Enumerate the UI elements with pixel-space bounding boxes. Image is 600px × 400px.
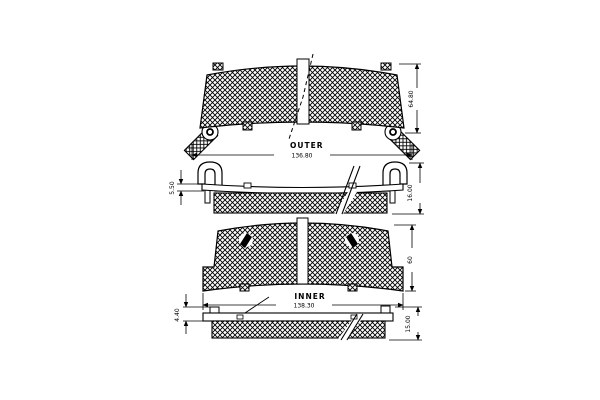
outer-bottom-left-notch [243,122,252,130]
outer-left-lug-hole [207,129,213,135]
outer-thickness-dim: 16.00 [407,184,414,201]
rivet-hole [237,315,243,319]
brake-pad-technical-drawing: OUTER 136.80 64.80 5.50 [0,0,600,400]
outer-friction-material [214,193,387,213]
outer-top-right-tab [381,63,391,70]
outer-backing-dim: 5.50 [169,181,176,195]
outer-center-slot [297,59,309,124]
inner-backing-dim: 4.40 [174,308,181,322]
inner-center-slot [297,218,308,284]
inner-height-dim: 60 [407,256,414,264]
inner-friction-material [212,321,385,338]
rivet-bump [244,183,251,188]
inner-backing-plate [203,313,393,321]
outer-label: OUTER [290,141,323,150]
inner-width-dim: 138.30 [294,303,315,310]
outer-bottom-right-notch [352,122,361,130]
outer-right-lug-hole [390,129,396,135]
clip-leg [205,189,210,203]
inner-bottom-right-notch [348,284,357,291]
outer-width-dim: 136.80 [292,153,313,160]
inner-thickness-dim: 15.00 [405,315,412,332]
outer-height-dim: 64.80 [408,90,415,107]
inner-bottom-left-notch [240,284,249,291]
drawing-canvas: OUTER 136.80 64.80 5.50 [0,0,600,400]
outer-top-left-tab [213,63,223,70]
inner-label: INNER [294,292,325,301]
